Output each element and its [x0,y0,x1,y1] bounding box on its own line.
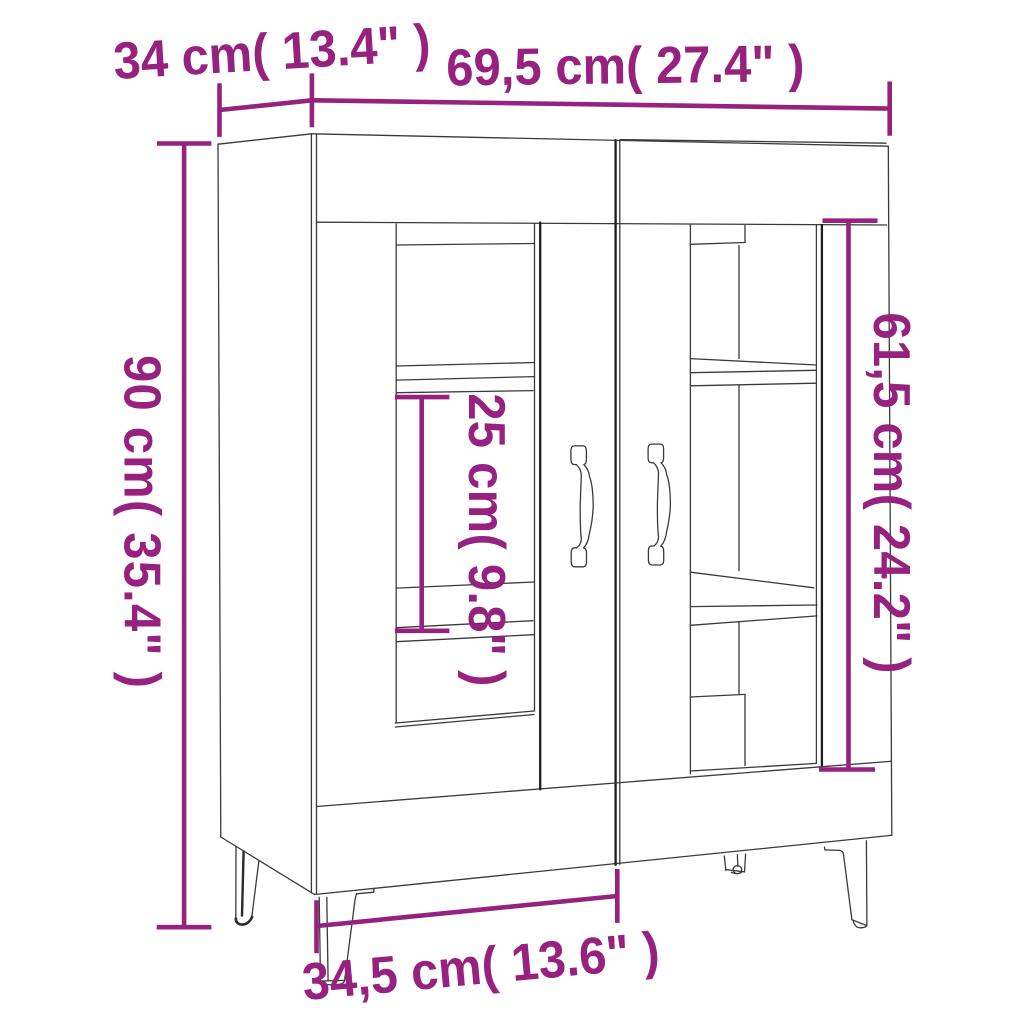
svg-text:34 cm( 13.4" ): 34 cm( 13.4" ) [112,13,432,90]
svg-text:61,5 cm( 24.2" ): 61,5 cm( 24.2" ) [863,312,922,673]
svg-text:90 cm( 35.4" ): 90 cm( 35.4" ) [113,355,172,689]
svg-text:25 cm( 9.8" ): 25 cm( 9.8" ) [458,393,517,686]
svg-text:34,5 cm( 13.6" ): 34,5 cm( 13.6" ) [300,920,662,1011]
svg-text:69,5 cm( 27.4" ): 69,5 cm( 27.4" ) [446,34,805,97]
